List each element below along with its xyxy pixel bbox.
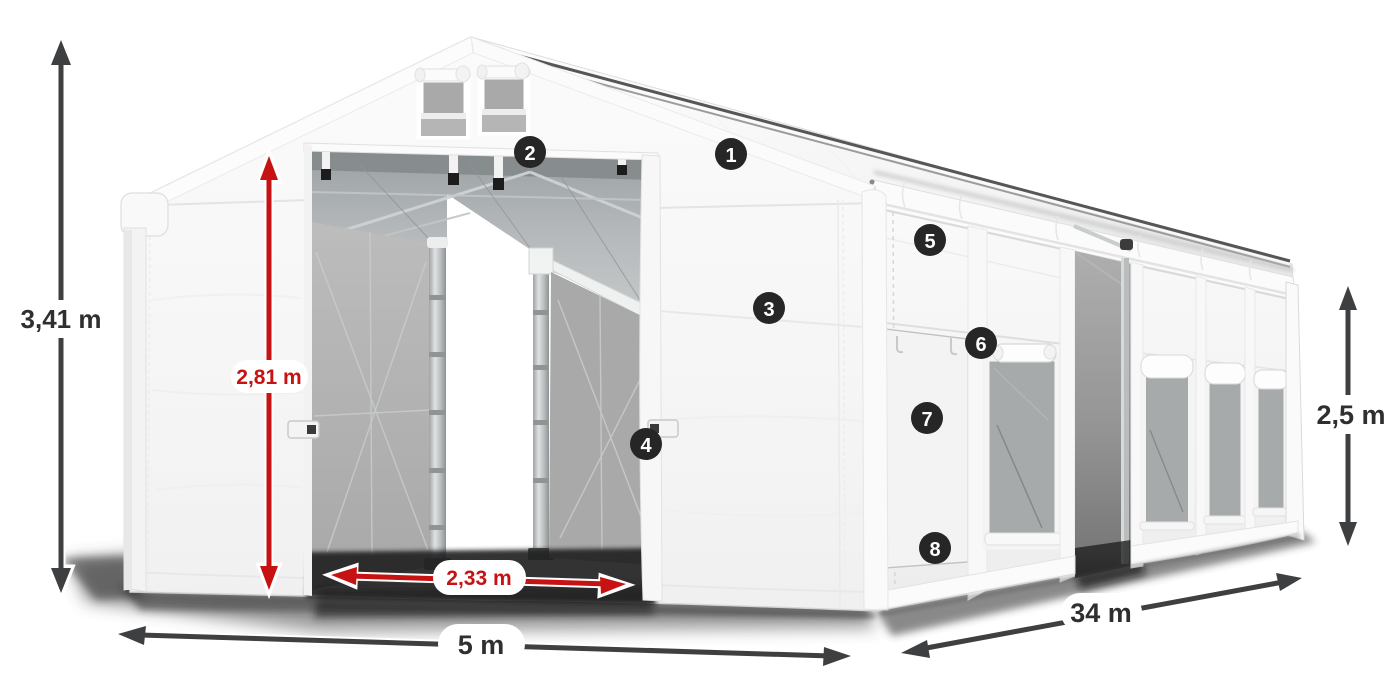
svg-text:5 m: 5 m — [458, 630, 505, 660]
svg-text:34 m: 34 m — [1070, 598, 1132, 628]
svg-text:2,33 m: 2,33 m — [446, 567, 511, 590]
svg-text:4: 4 — [640, 435, 652, 457]
svg-text:6: 6 — [975, 334, 986, 356]
svg-text:2,5 m: 2,5 m — [1316, 400, 1385, 430]
svg-text:8: 8 — [929, 539, 940, 561]
svg-text:2: 2 — [524, 143, 535, 165]
svg-text:1: 1 — [725, 145, 736, 167]
svg-text:3,41 m: 3,41 m — [21, 304, 102, 334]
svg-text:2,81 m: 2,81 m — [236, 366, 301, 389]
svg-text:7: 7 — [921, 409, 932, 431]
svg-text:5: 5 — [924, 231, 935, 253]
svg-text:3: 3 — [763, 299, 774, 321]
